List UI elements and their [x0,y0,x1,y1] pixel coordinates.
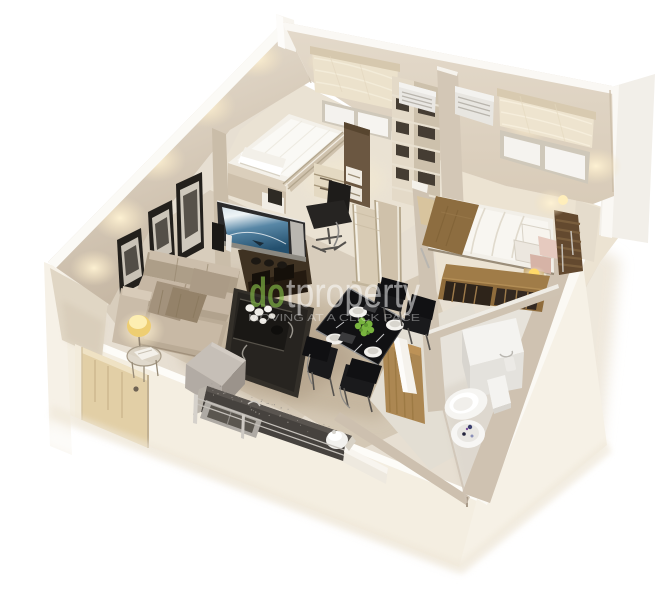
svg-text:tproperty: tproperty [286,269,420,316]
svg-text:MOVING AT A CLICK PACE: MOVING AT A CLICK PACE [248,312,420,324]
svg-text:do: do [249,269,285,316]
